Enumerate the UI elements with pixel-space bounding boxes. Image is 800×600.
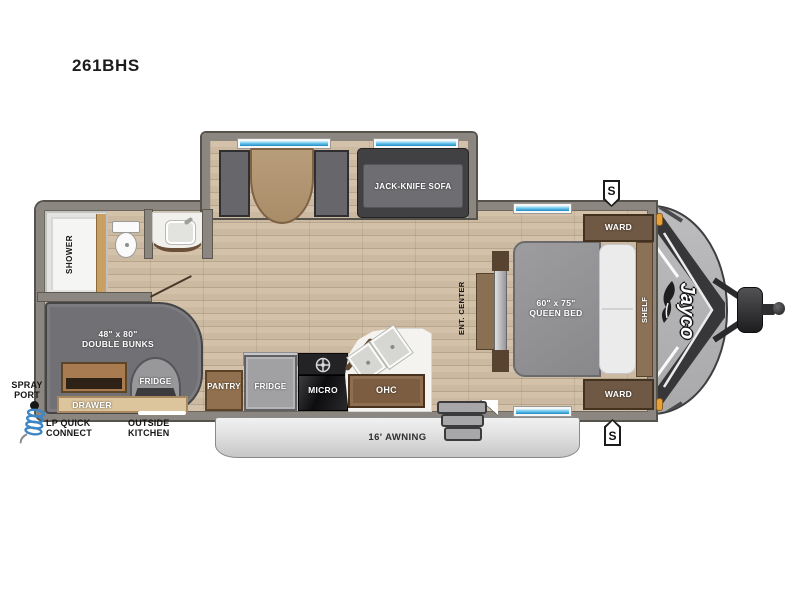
tv-cap-top <box>492 251 509 271</box>
bed-pillows <box>599 244 636 374</box>
outside-kitchen-label: OUTSIDE KITCHEN <box>128 418 180 439</box>
propane-tank-cover <box>737 287 763 333</box>
window-glass <box>516 409 569 414</box>
bath-faucet-icon <box>184 217 194 225</box>
awning-label: 16' AWNING <box>215 433 580 444</box>
floorplan-page: 261BHS Jayco JACK- <box>0 0 800 600</box>
ok-line2: KITCHEN <box>128 428 169 438</box>
ent-center-label: ENT. CENTER <box>458 281 467 335</box>
drawer-label: DRAWER <box>57 400 127 410</box>
outside-kitchen-shelf <box>61 362 127 393</box>
shower-label: SHOWER <box>65 234 74 276</box>
lp-line1: LP QUICK <box>46 418 90 428</box>
shelf-label: SHELF <box>640 288 649 332</box>
jayco-logo: Jayco <box>674 279 698 343</box>
ward-bottom-label: WARD <box>583 389 654 399</box>
stove-panel <box>298 353 348 375</box>
sink-drain <box>390 344 396 350</box>
bed-label: 60" x 75" QUEEN BED <box>516 298 596 318</box>
bath-wall-stub-2 <box>203 210 212 258</box>
ok-line1: OUTSIDE <box>128 418 169 428</box>
dinette-bench-left <box>219 150 250 217</box>
micro-label: MICRO <box>298 385 348 395</box>
outside-kitchen-door-line <box>138 411 186 415</box>
spray-port-label: SPRAY PORT <box>6 380 48 401</box>
toilet <box>112 221 140 259</box>
bath-vanity <box>152 212 203 252</box>
marker-light-bottom <box>656 398 663 411</box>
spray-line2: PORT <box>14 390 40 400</box>
badge-top-letter: S <box>607 184 615 198</box>
speaker-badge-bottom: S <box>604 419 621 446</box>
bedroom-window-top <box>513 203 572 214</box>
stove-burner-icon <box>315 357 331 373</box>
shower-trim <box>96 214 106 293</box>
bunks-size: 48" x 80" <box>98 329 137 339</box>
ohc-label: OHC <box>348 385 425 396</box>
pantry-label: PANTRY <box>205 382 243 392</box>
lp-coil-icon <box>19 407 48 448</box>
model-title: 261BHS <box>72 56 140 76</box>
sofa-label: JACK-KNIFE SOFA <box>357 182 469 192</box>
bath-sink <box>166 221 195 244</box>
ward-top-label: WARD <box>583 222 654 232</box>
tv-cap-bottom <box>492 350 509 372</box>
bedroom-window-bottom <box>513 406 572 417</box>
lp-quick-connect-label: LP QUICK CONNECT <box>46 418 102 439</box>
fridge-label: FRIDGE <box>244 382 297 392</box>
badge-bottom-letter: S <box>608 429 616 443</box>
hitch-ball-icon <box>773 302 785 315</box>
spray-line1: SPRAY <box>11 380 42 390</box>
pillow-seam <box>602 308 633 310</box>
lp-line2: CONNECT <box>46 428 92 438</box>
window-glass <box>376 141 456 146</box>
bunks-label: 48" x 80" DOUBLE BUNKS <box>62 329 174 349</box>
bath-wall-stub-1 <box>145 210 152 258</box>
entry-step-3 <box>444 427 482 441</box>
tv <box>494 262 507 360</box>
bed-name: QUEEN BED <box>529 308 582 318</box>
dinette-bench-right <box>314 150 349 217</box>
bath-bottom-wall <box>38 293 151 301</box>
jack-knife-sofa: JACK-KNIFE SOFA <box>357 148 469 218</box>
window-glass <box>516 206 569 211</box>
shower: SHOWER <box>45 211 108 296</box>
entry-step-1 <box>437 401 487 414</box>
outside-fridge-label: FRIDGE <box>130 377 181 387</box>
bed-size: 60" x 75" <box>536 298 575 308</box>
shelf-slot <box>66 378 122 389</box>
marker-light-top <box>656 213 663 226</box>
toilet-drain <box>125 243 129 247</box>
bunks-name: DOUBLE BUNKS <box>82 339 154 349</box>
window-glass <box>240 141 328 146</box>
toilet-bowl <box>115 232 137 258</box>
entry-step-2 <box>441 414 484 427</box>
sink-drain <box>365 360 371 366</box>
